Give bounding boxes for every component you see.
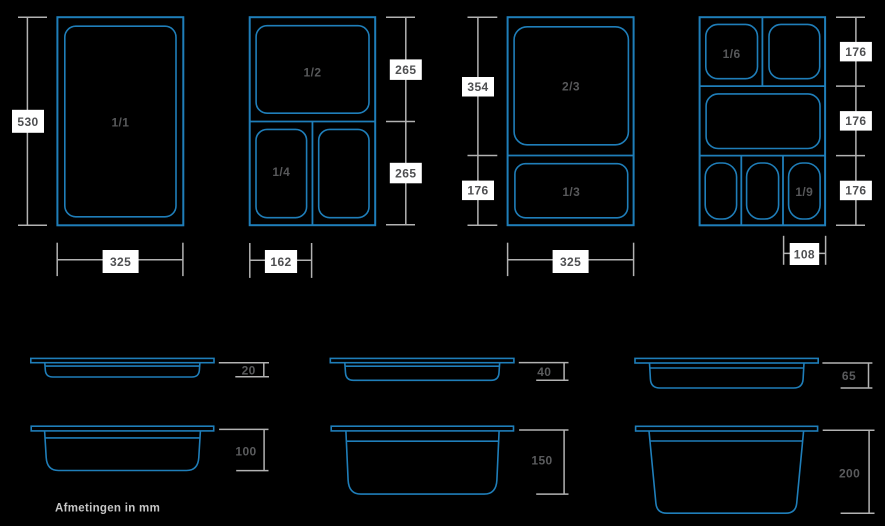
svg-text:176: 176	[467, 184, 488, 198]
svg-text:265: 265	[395, 63, 416, 77]
svg-text:100: 100	[235, 444, 256, 458]
svg-text:65: 65	[842, 369, 856, 383]
svg-text:40: 40	[537, 365, 551, 379]
svg-text:325: 325	[110, 255, 131, 269]
svg-text:1/9: 1/9	[795, 185, 813, 199]
svg-text:162: 162	[270, 255, 291, 269]
svg-text:176: 176	[845, 114, 866, 128]
svg-text:530: 530	[17, 115, 38, 129]
svg-text:1/2: 1/2	[304, 65, 322, 79]
svg-text:200: 200	[839, 466, 860, 480]
svg-text:176: 176	[845, 184, 866, 198]
svg-text:325: 325	[560, 255, 581, 269]
svg-text:354: 354	[467, 80, 488, 94]
svg-text:150: 150	[531, 454, 552, 468]
svg-text:1/6: 1/6	[723, 47, 741, 61]
svg-text:1/4: 1/4	[272, 165, 290, 179]
svg-text:2/3: 2/3	[562, 80, 580, 94]
svg-text:20: 20	[242, 363, 256, 377]
svg-text:108: 108	[794, 248, 815, 262]
svg-text:1/1: 1/1	[111, 115, 129, 129]
svg-text:176: 176	[845, 45, 866, 59]
svg-text:1/3: 1/3	[562, 185, 580, 199]
svg-text:Afmetingen in mm: Afmetingen in mm	[55, 503, 160, 515]
svg-text:265: 265	[395, 167, 416, 181]
